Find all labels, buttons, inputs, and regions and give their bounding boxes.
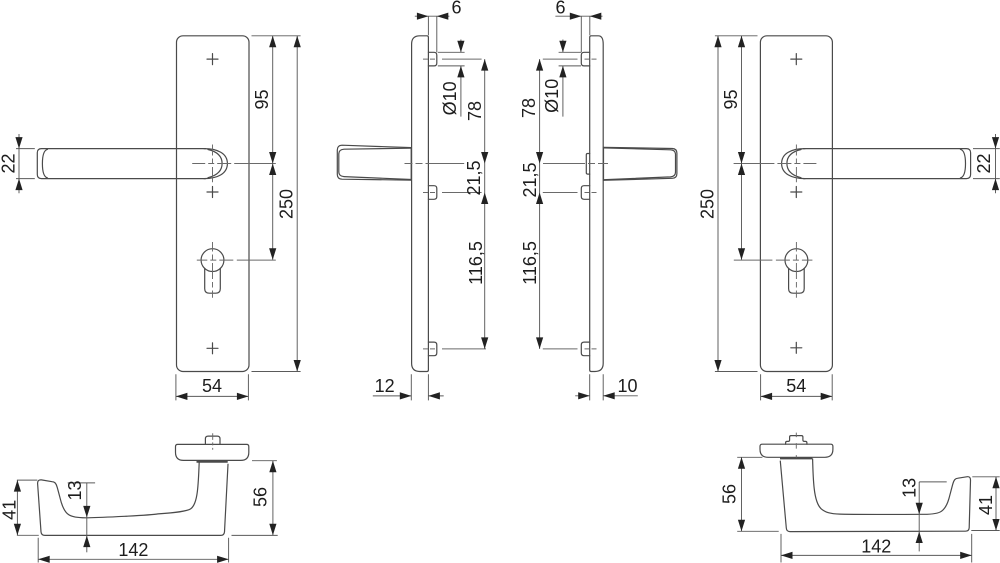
svg-text:54: 54 <box>202 376 222 396</box>
svg-text:Ø10: Ø10 <box>440 81 460 115</box>
svg-text:41: 41 <box>0 500 20 520</box>
svg-text:116,5: 116,5 <box>520 241 540 285</box>
svg-text:6: 6 <box>555 0 565 17</box>
svg-text:56: 56 <box>251 487 271 507</box>
svg-text:56: 56 <box>719 484 739 504</box>
svg-text:13: 13 <box>65 480 85 500</box>
svg-text:54: 54 <box>786 376 806 396</box>
svg-text:22: 22 <box>0 153 19 173</box>
svg-text:21,5: 21,5 <box>520 162 540 197</box>
svg-text:6: 6 <box>451 0 461 17</box>
svg-text:12: 12 <box>375 376 395 396</box>
svg-text:78: 78 <box>465 101 485 121</box>
svg-text:95: 95 <box>252 89 272 109</box>
svg-text:116,5: 116,5 <box>466 241 486 285</box>
svg-text:13: 13 <box>899 478 919 498</box>
svg-text:250: 250 <box>277 189 297 219</box>
svg-text:41: 41 <box>976 495 996 515</box>
svg-text:22: 22 <box>974 153 994 173</box>
svg-text:10: 10 <box>617 376 637 396</box>
svg-text:Ø10: Ø10 <box>542 79 562 113</box>
svg-text:250: 250 <box>697 189 717 219</box>
svg-text:142: 142 <box>861 536 891 556</box>
svg-text:142: 142 <box>118 540 148 560</box>
svg-text:21,5: 21,5 <box>464 160 484 195</box>
svg-text:95: 95 <box>721 89 741 109</box>
svg-text:78: 78 <box>519 98 539 118</box>
